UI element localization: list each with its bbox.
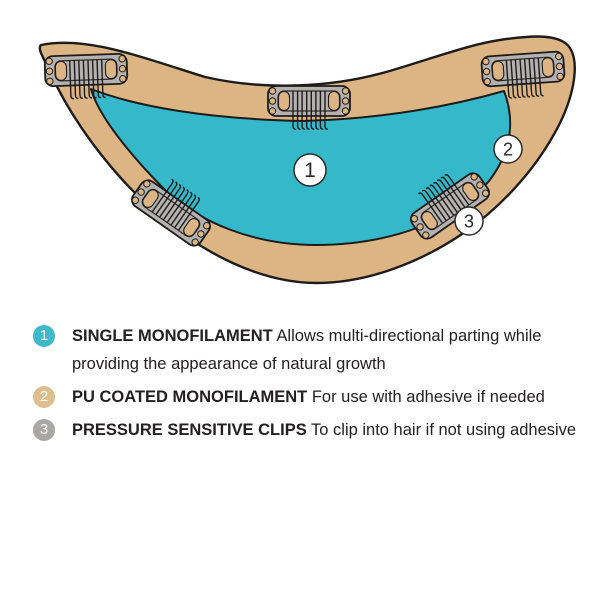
legend-bullet-2: 2 (33, 386, 55, 408)
legend-description: For use with adhesive if needed (307, 388, 545, 406)
legend-label: SINGLE MONOFILAMENT (72, 327, 273, 345)
cap-diagram: 1 2 3 (0, 0, 612, 312)
callout-1-number: 1 (304, 159, 316, 182)
page: 1 2 3 1 SINGLE MONOFILAMENT Allows multi… (0, 0, 612, 591)
callout-1: 1 (294, 154, 326, 186)
legend-description: To clip into hair if not using adhesive (307, 421, 576, 439)
callout-2: 2 (494, 135, 522, 163)
callout-2-number: 2 (503, 140, 513, 160)
legend-item-pu-coated-monofilament: 2 PU COATED MONOFILAMENT For use with ad… (33, 383, 598, 411)
legend-entry: PU COATED MONOFILAMENT For use with adhe… (72, 383, 545, 411)
legend-bullet-1: 1 (33, 325, 55, 347)
legend-entry: SINGLE MONOFILAMENT Allows multi-directi… (72, 322, 595, 378)
legend: 1 SINGLE MONOFILAMENT Allows multi-direc… (33, 322, 598, 449)
legend-entry: PRESSURE SENSITIVE CLIPS To clip into ha… (72, 416, 576, 444)
callout-3: 3 (455, 207, 483, 235)
legend-bullet-3: 3 (33, 419, 55, 441)
legend-item-pressure-sensitive-clips: 3 PRESSURE SENSITIVE CLIPS To clip into … (33, 416, 598, 444)
legend-label: PU COATED MONOFILAMENT (72, 388, 307, 406)
legend-item-single-monofilament: 1 SINGLE MONOFILAMENT Allows multi-direc… (33, 322, 598, 378)
callout-3-number: 3 (464, 212, 474, 232)
legend-label: PRESSURE SENSITIVE CLIPS (72, 421, 307, 439)
